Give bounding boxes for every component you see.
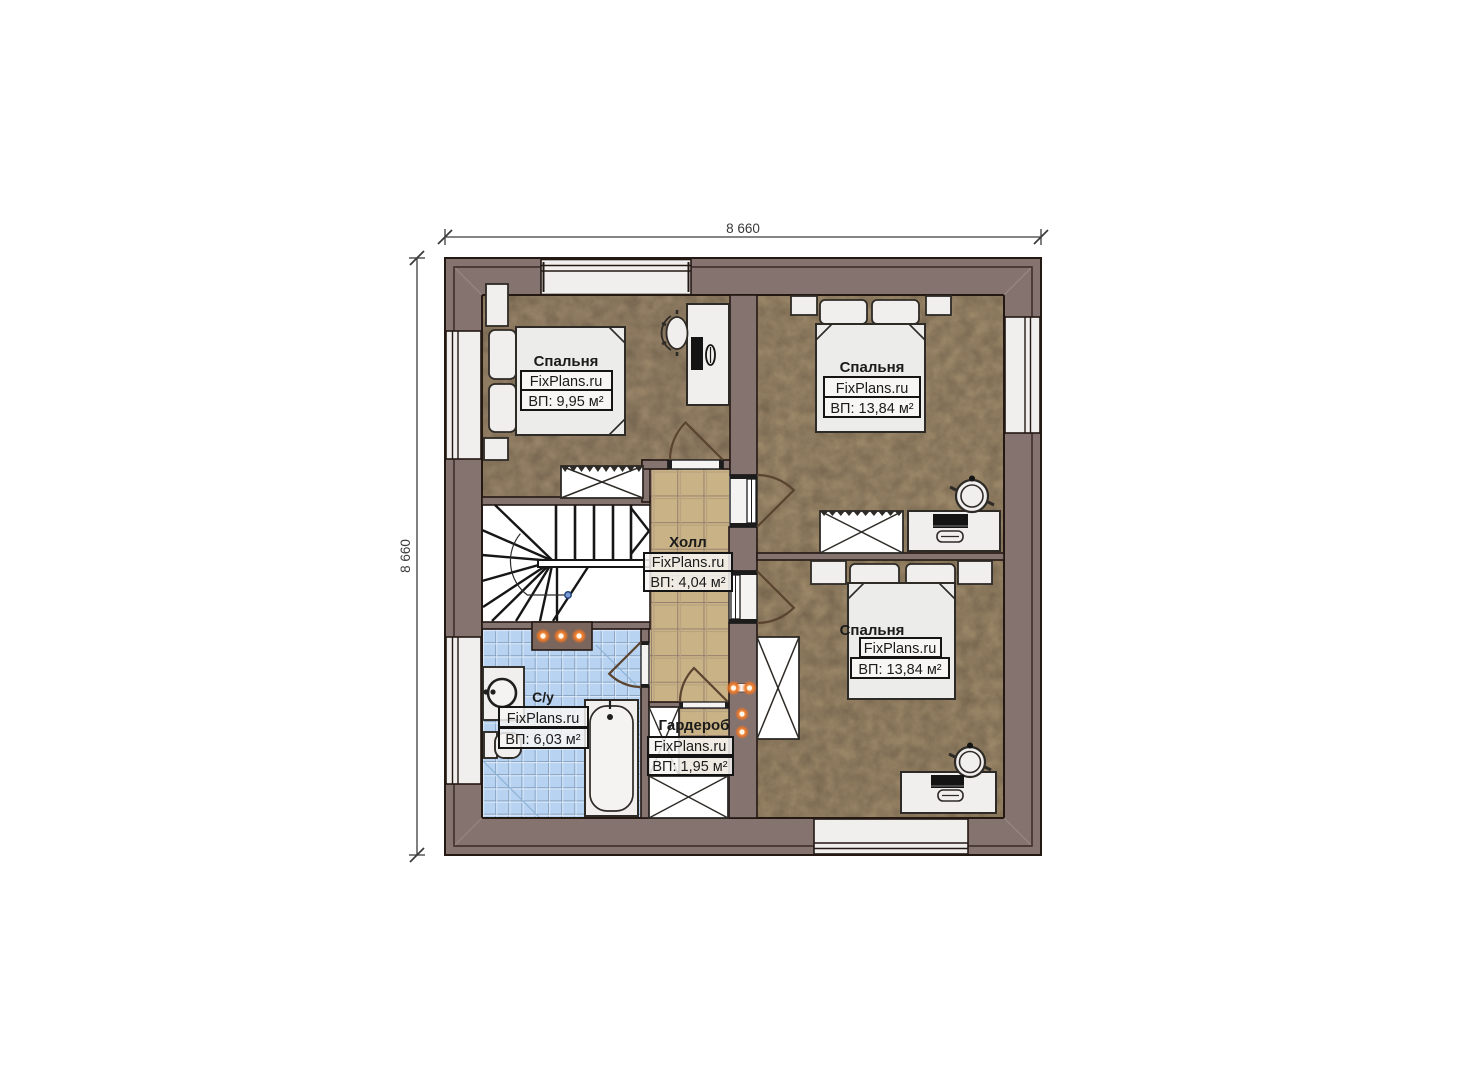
svg-text:С/у: С/у xyxy=(532,689,554,705)
svg-text:ВП: 13,84 м²: ВП: 13,84 м² xyxy=(858,662,941,678)
svg-text:Спальня: Спальня xyxy=(534,353,599,370)
svg-text:ВП: 4,04 м²: ВП: 4,04 м² xyxy=(650,575,725,591)
svg-text:FixPlans.ru: FixPlans.ru xyxy=(530,374,603,390)
svg-text:FixPlans.ru: FixPlans.ru xyxy=(654,739,727,755)
svg-text:ВП: 1,95 м²: ВП: 1,95 м² xyxy=(652,759,727,775)
svg-text:FixPlans.ru: FixPlans.ru xyxy=(836,381,909,397)
svg-text:FixPlans.ru: FixPlans.ru xyxy=(507,711,580,727)
svg-text:ВП: 9,95 м²: ВП: 9,95 м² xyxy=(528,394,603,410)
svg-text:FixPlans.ru: FixPlans.ru xyxy=(864,641,937,657)
svg-text:Холл: Холл xyxy=(669,534,707,551)
svg-text:Спальня: Спальня xyxy=(840,359,905,376)
svg-text:8 660: 8 660 xyxy=(398,539,413,573)
svg-text:Гардероб: Гардероб xyxy=(659,717,730,734)
svg-text:ВП: 6,03 м²: ВП: 6,03 м² xyxy=(505,732,580,748)
svg-text:ВП: 13,84 м²: ВП: 13,84 м² xyxy=(830,401,913,417)
svg-text:8 660: 8 660 xyxy=(726,221,760,236)
svg-text:Спальня: Спальня xyxy=(840,622,905,639)
svg-text:FixPlans.ru: FixPlans.ru xyxy=(652,555,725,571)
